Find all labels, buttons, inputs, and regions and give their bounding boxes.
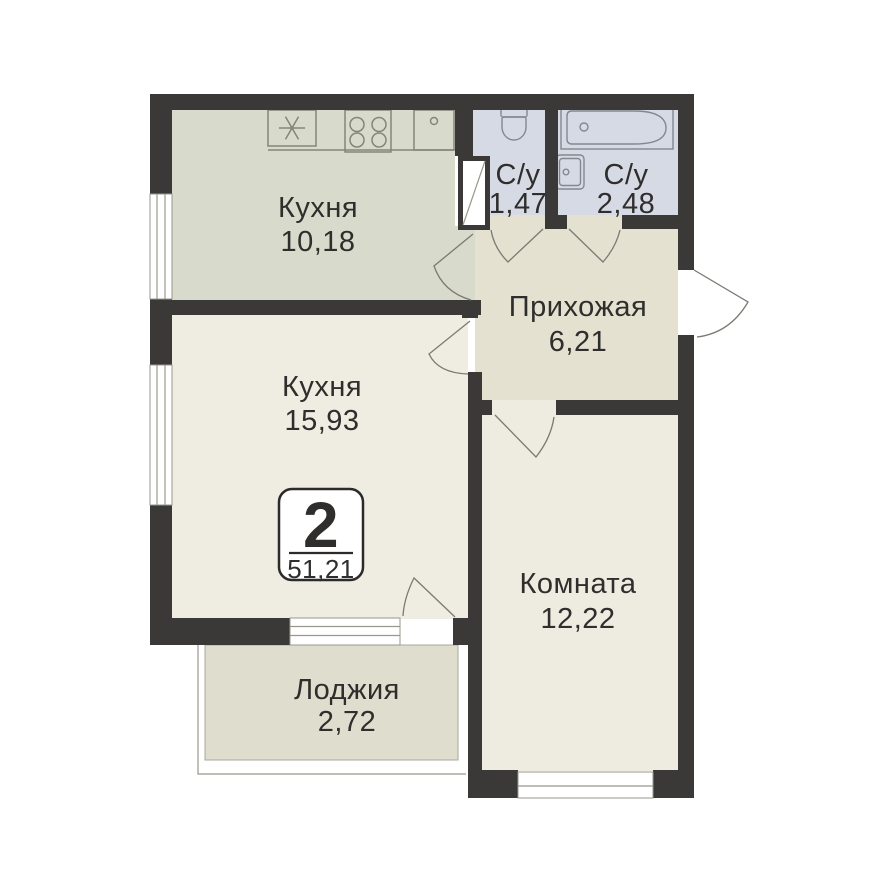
wall-room-bottom (468, 770, 518, 798)
room-name-room: Комната (519, 568, 636, 600)
wall-left (150, 110, 172, 194)
room-area-kitchen-living: 15,93 (284, 405, 359, 437)
room-name-kitchen-living: Кухня (282, 371, 362, 403)
room-area-bathroom-large: 2,48 (597, 188, 655, 220)
wall-room-left (468, 372, 482, 798)
fridge-star-dot (290, 126, 293, 129)
room-area-hallway: 6,21 (549, 326, 607, 358)
wall-bath-bottom (545, 215, 567, 229)
wall-room-bottom (653, 770, 694, 798)
room-area-bathroom-small: 1,47 (489, 188, 547, 220)
room-name-hallway: Прихожая (509, 291, 647, 323)
room-area-loggia: 2,72 (318, 706, 376, 738)
apartment-badge: 2 51,21 (279, 489, 363, 584)
wall-cap (462, 300, 478, 318)
wall-hall-bottom (556, 400, 694, 415)
door-entrance (694, 270, 748, 337)
room-name-loggia: Лоджия (294, 674, 400, 706)
room-name-kitchen: Кухня (278, 192, 358, 224)
floor-plan: Кухня 10,18 С/у 1,47 С/у 2,48 Прихожая 6… (0, 0, 886, 886)
wall-kitchen-bath (455, 94, 473, 156)
room-area-kitchen: 10,18 (280, 226, 355, 258)
window (150, 194, 172, 299)
room-name-bathroom-small: С/у (496, 159, 541, 191)
room-area-room: 12,22 (540, 603, 615, 635)
kitchen-floor-doorway (455, 226, 475, 302)
room-name-bathroom-large: С/у (604, 159, 649, 191)
wall-kitchen-bottom (150, 300, 481, 315)
wall-top (150, 94, 694, 110)
window (150, 365, 172, 505)
room-window (518, 772, 653, 798)
wall-living-bottom (150, 618, 290, 645)
loggia-window (290, 618, 400, 645)
floor-plan-canvas: Кухня 10,18 С/у 1,47 С/у 2,48 Прихожая 6… (0, 0, 886, 886)
shaft (463, 161, 485, 225)
wall-right (678, 110, 694, 270)
badge-total-area: 51,21 (287, 554, 355, 584)
badge-rooms-count: 2 (303, 489, 339, 561)
